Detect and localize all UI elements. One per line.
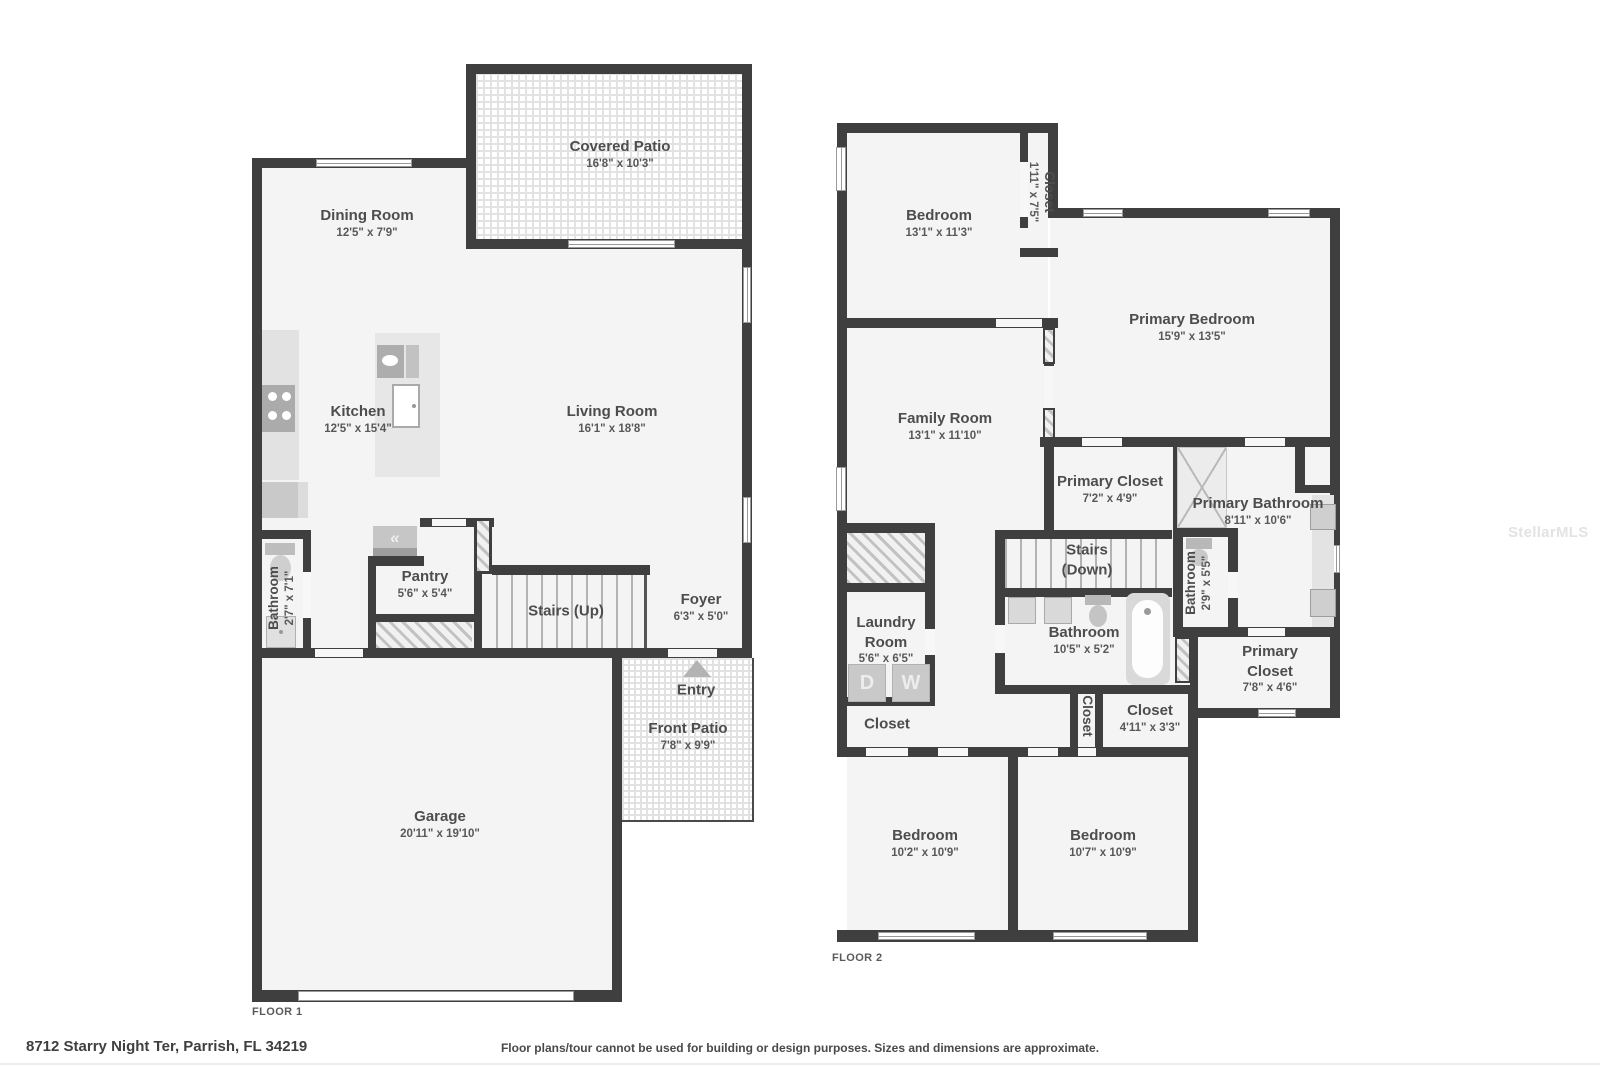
drain-icon bbox=[1144, 608, 1151, 615]
window bbox=[316, 159, 412, 167]
stellarmls-watermark: StellarMLS bbox=[1508, 524, 1589, 541]
wall bbox=[1188, 747, 1198, 942]
burner-icon bbox=[282, 392, 291, 401]
wall bbox=[368, 556, 376, 650]
room-label-closet-hall: Closet bbox=[1078, 695, 1096, 736]
room-label-bedroom3: Bedroom 10'7" x 10'9" bbox=[1069, 826, 1137, 860]
sink-basin-icon bbox=[382, 355, 398, 366]
wall bbox=[837, 123, 847, 757]
window bbox=[836, 467, 846, 511]
wall bbox=[474, 574, 482, 650]
room-label-dining: Dining Room 12'5" x 7'9" bbox=[320, 206, 413, 240]
sliding-door bbox=[568, 240, 675, 248]
window bbox=[1258, 709, 1296, 717]
sink-icon bbox=[1310, 589, 1336, 617]
door-opening bbox=[1228, 572, 1238, 598]
burner-icon bbox=[282, 411, 291, 420]
sink-drain-icon bbox=[279, 630, 283, 634]
room-label-bedroom1: Bedroom 13'1" x 11'3" bbox=[906, 206, 973, 240]
wall bbox=[1095, 687, 1103, 747]
door-opening bbox=[432, 519, 466, 526]
entry-opening bbox=[668, 649, 717, 657]
room-label-foyer: Foyer 6'3" x 5'0" bbox=[674, 590, 729, 624]
door-opening bbox=[995, 625, 1005, 653]
stair-rail bbox=[644, 575, 647, 648]
room-label-stairs-down: Stairs (Down) bbox=[1052, 541, 1122, 580]
sink-icon bbox=[1044, 597, 1072, 624]
disclaimer-text: Floor plans/tour cannot be used for buil… bbox=[501, 1041, 1099, 1055]
room-label-stairs-up: Stairs (Up) bbox=[528, 601, 604, 621]
door-opening bbox=[315, 649, 363, 657]
room-label-covered-patio: Covered Patio 16'8" x 10'3" bbox=[570, 137, 671, 171]
wall bbox=[1044, 447, 1054, 530]
refrigerator-icon bbox=[262, 482, 302, 518]
wall bbox=[466, 64, 476, 249]
wall bbox=[1297, 485, 1340, 493]
wall bbox=[1008, 757, 1018, 937]
window bbox=[1083, 209, 1123, 217]
room-label-primary-closet2: Primary Closet 7'8" x 4'6" bbox=[1228, 642, 1312, 696]
wall-chase bbox=[1175, 637, 1191, 683]
room-label-laundry: Laundry Room 5'6" x 6'5" bbox=[849, 613, 923, 667]
sink-icon bbox=[1008, 597, 1036, 624]
room-label-primary-bedroom: Primary Bedroom 15'9" x 13'5" bbox=[1129, 310, 1255, 344]
wall bbox=[1020, 248, 1058, 257]
door-opening bbox=[866, 748, 908, 756]
room-label-front-patio: Front Patio 7'8" x 9'9" bbox=[648, 719, 727, 753]
wall bbox=[742, 64, 752, 249]
room-label-closet-laundry: Closet bbox=[864, 714, 910, 734]
stove-icon bbox=[262, 385, 295, 432]
door-opening bbox=[996, 319, 1042, 327]
door-opening bbox=[925, 629, 935, 655]
washer-icon: W bbox=[892, 664, 930, 702]
door-opening bbox=[1044, 366, 1054, 408]
toilet-icon bbox=[1085, 595, 1111, 605]
room-label-living: Living Room 16'1" x 18'8" bbox=[567, 402, 658, 436]
toilet-icon bbox=[1186, 538, 1212, 549]
room-label-primary-closet1: Primary Closet 7'2" x 4'9" bbox=[1057, 472, 1163, 506]
window bbox=[1268, 209, 1310, 217]
room-label-bathroom-f1: Bathroom 2'7" x 7'1" bbox=[265, 566, 297, 630]
room-label-entry: Entry bbox=[677, 680, 715, 700]
wall bbox=[612, 658, 622, 1002]
garage-door bbox=[298, 991, 574, 1001]
wall bbox=[1330, 208, 1340, 718]
wall bbox=[837, 583, 935, 592]
window bbox=[743, 267, 751, 323]
wall bbox=[1190, 635, 1198, 718]
understair-storage bbox=[376, 622, 472, 648]
window bbox=[878, 932, 975, 940]
wall bbox=[368, 614, 474, 622]
toilet-icon bbox=[265, 543, 295, 555]
burner-icon bbox=[268, 392, 277, 401]
door-opening bbox=[1248, 628, 1285, 636]
floor1-tag: FLOOR 1 bbox=[252, 1006, 302, 1018]
dishwasher-knob-icon bbox=[412, 404, 416, 408]
window bbox=[1053, 932, 1147, 940]
wall bbox=[995, 530, 1172, 539]
room-label-bathroom2: Bathroom 10'5" x 5'2" bbox=[1049, 623, 1120, 657]
room-label-primary-bathroom: Primary Bathroom 8'11" x 10'6" bbox=[1193, 494, 1324, 528]
wall bbox=[837, 523, 935, 533]
wall-chase bbox=[1043, 328, 1055, 364]
hatched-area bbox=[847, 533, 925, 583]
counter-icon bbox=[406, 345, 419, 378]
wall bbox=[466, 64, 752, 74]
dryer-icon: D bbox=[848, 664, 886, 702]
wall bbox=[995, 530, 1005, 687]
door-opening bbox=[1078, 748, 1096, 756]
door-opening bbox=[1028, 748, 1058, 756]
window bbox=[836, 147, 846, 191]
cabinet-icon bbox=[373, 548, 417, 556]
wall-chase bbox=[477, 521, 489, 571]
door-opening bbox=[1082, 438, 1122, 446]
room-label-pantry: Pantry 5'6" x 5'4" bbox=[398, 567, 453, 601]
window bbox=[743, 497, 751, 543]
room-label-bathroom-small: Bathroom 2'9" x 5'5" bbox=[1182, 551, 1214, 615]
wall bbox=[1070, 687, 1078, 747]
room-label-closet1: Closet 1'11" x 7'5" bbox=[1026, 162, 1058, 223]
wall bbox=[368, 556, 424, 566]
burner-icon bbox=[268, 411, 277, 420]
refrigerator-icon bbox=[298, 482, 308, 518]
door-opening bbox=[303, 572, 311, 618]
door-opening bbox=[1245, 438, 1285, 446]
room-label-bedroom2: Bedroom 10'2" x 10'9" bbox=[891, 826, 959, 860]
divider bbox=[0, 1063, 1600, 1065]
room-label-garage: Garage 20'11" x 19'10" bbox=[400, 807, 480, 841]
wall bbox=[492, 565, 650, 575]
wall bbox=[252, 158, 262, 1002]
floor2-tag: FLOOR 2 bbox=[832, 952, 882, 964]
room-label-family-room: Family Room 13'1" x 11'10" bbox=[898, 409, 992, 443]
door-opening bbox=[938, 748, 968, 756]
room-label-kitchen: Kitchen 12'5" x 15'4" bbox=[324, 402, 392, 436]
room-label-closet2: Closet 4'11" x 3'3" bbox=[1120, 701, 1181, 735]
address-text: 8712 Starry Night Ter, Parrish, FL 34219 bbox=[26, 1038, 307, 1055]
entry-arrow-icon bbox=[683, 660, 711, 677]
floor-plan-page: « Covered Patio 16'8" x 10'3" Dining Roo… bbox=[0, 0, 1600, 1066]
